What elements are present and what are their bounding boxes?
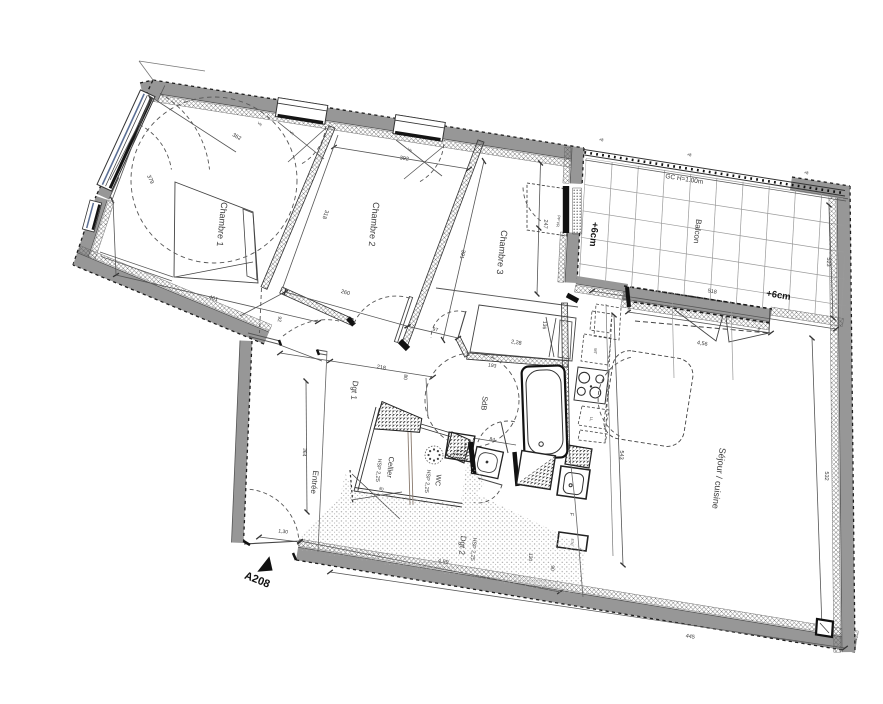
svg-text:WC: WC: [433, 474, 441, 486]
svg-text:136: 136: [541, 321, 547, 330]
svg-text:543: 543: [618, 450, 624, 459]
svg-text:92: 92: [276, 316, 283, 322]
svg-text:247: 247: [542, 219, 548, 228]
svg-text:SdB: SdB: [479, 396, 489, 411]
svg-text:80: 80: [402, 374, 409, 380]
svg-text:364: 364: [301, 448, 308, 457]
svg-text:MT: MT: [593, 348, 599, 355]
svg-text:523: 523: [825, 257, 831, 266]
svg-text:532: 532: [823, 471, 829, 480]
